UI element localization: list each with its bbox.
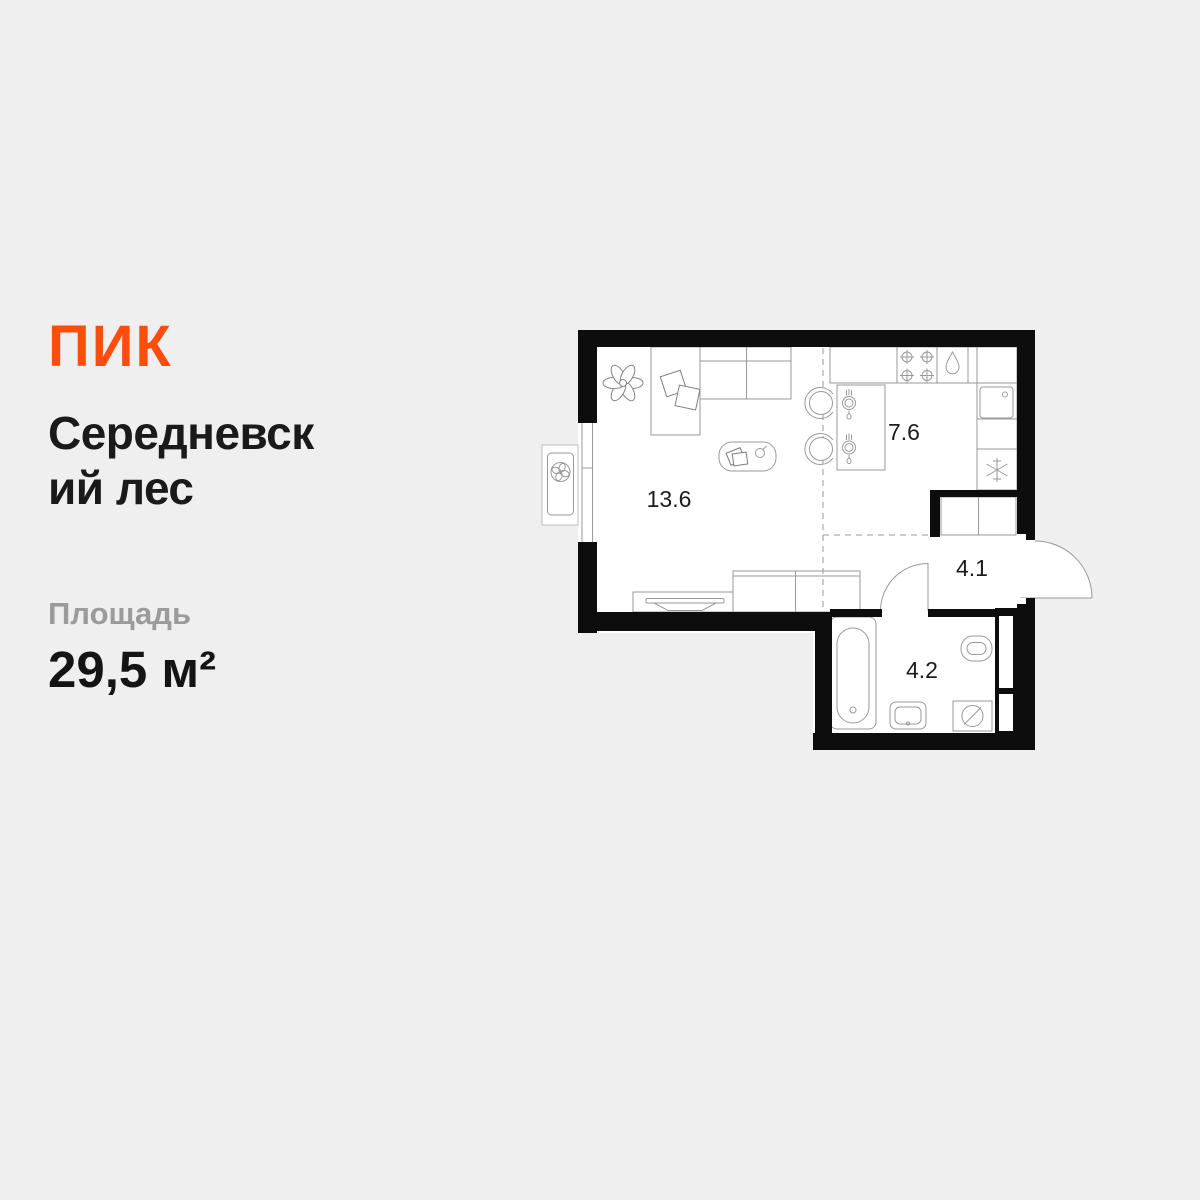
wardrobe bbox=[941, 497, 1016, 535]
air-conditioner bbox=[542, 445, 578, 525]
promo-card: ПИК Середневск ий лес Площадь 29,5 м² bbox=[0, 0, 1200, 1200]
room-label-kitchen: 7.6 bbox=[888, 419, 920, 445]
room-label-living-room: 13.6 bbox=[647, 486, 692, 512]
room-label-hallway: 4.1 bbox=[956, 555, 988, 581]
bathtub-icon bbox=[830, 617, 876, 729]
window bbox=[578, 423, 597, 542]
washing-machine-icon bbox=[953, 701, 992, 731]
tv-stand bbox=[633, 592, 733, 612]
washbasin-icon bbox=[890, 702, 926, 729]
bar-counter bbox=[837, 385, 885, 470]
toilet-icon bbox=[961, 636, 992, 661]
floor-plan: 13.6 7.6 4.1 4.2 bbox=[0, 0, 1200, 1200]
room-label-bathroom: 4.2 bbox=[906, 657, 938, 683]
coffee-table bbox=[719, 442, 776, 471]
